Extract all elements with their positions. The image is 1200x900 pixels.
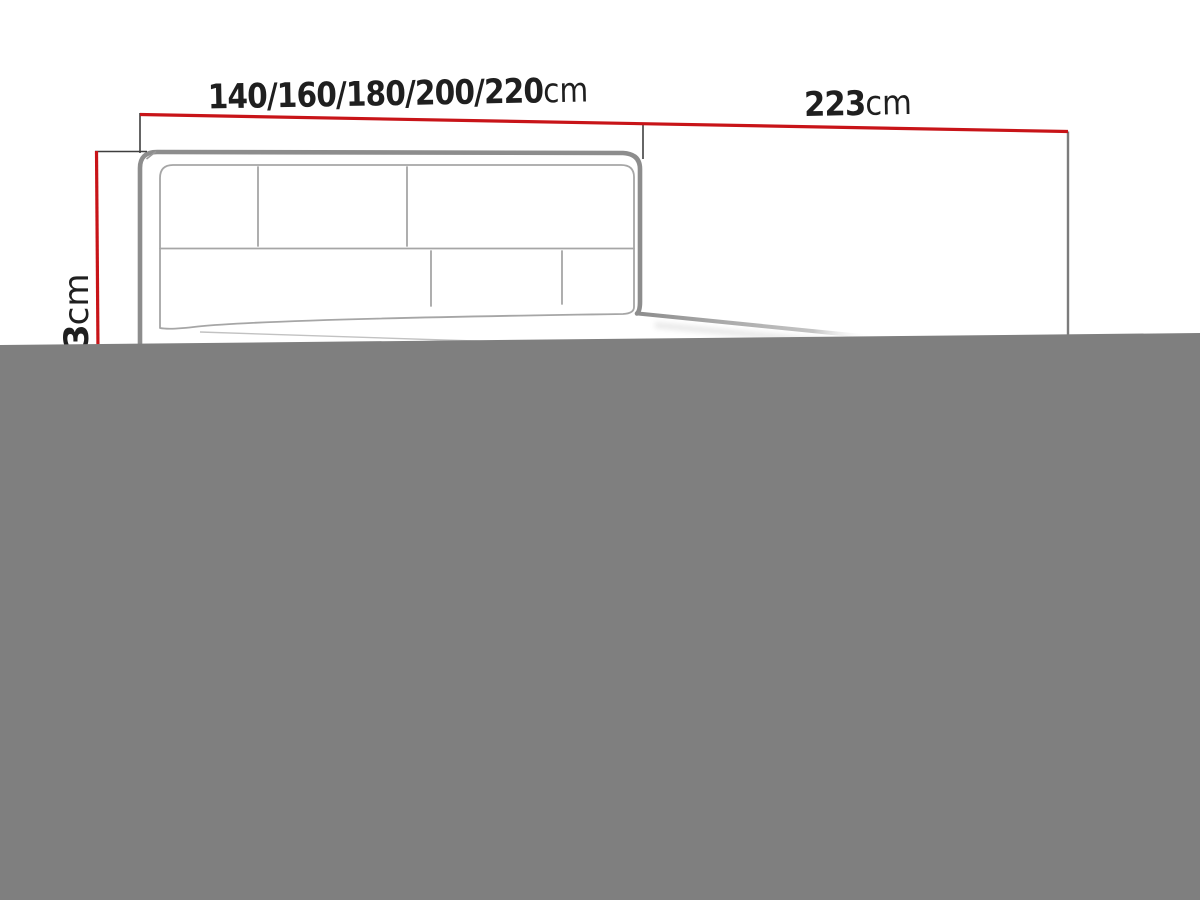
headboard-inner-panel bbox=[160, 165, 634, 329]
length-dimension-value: 223 bbox=[804, 84, 866, 125]
width-dimension-label: 140/160/180/200/220cm bbox=[206, 70, 589, 117]
headboard-panels bbox=[160, 165, 634, 329]
width-dimension-value: 140/160/180/200/220 bbox=[207, 71, 543, 117]
height-dimension-unit: cm bbox=[57, 274, 97, 326]
headboard-outer-edge bbox=[140, 152, 640, 352]
dimension-diagram: 140/160/180/200/220cm 223cm 3cm bbox=[0, 0, 1200, 900]
length-dimension-unit: cm bbox=[865, 83, 912, 124]
dimension-lines bbox=[95, 113, 1068, 352]
mattress-edge-line bbox=[200, 332, 490, 342]
length-dimension-label: 223cm bbox=[768, 82, 949, 125]
headboard-outline bbox=[140, 152, 872, 353]
height-dimension-label: 3cm bbox=[57, 274, 97, 349]
mattress-edge bbox=[200, 332, 490, 342]
width-dimension-unit: cm bbox=[543, 71, 589, 112]
